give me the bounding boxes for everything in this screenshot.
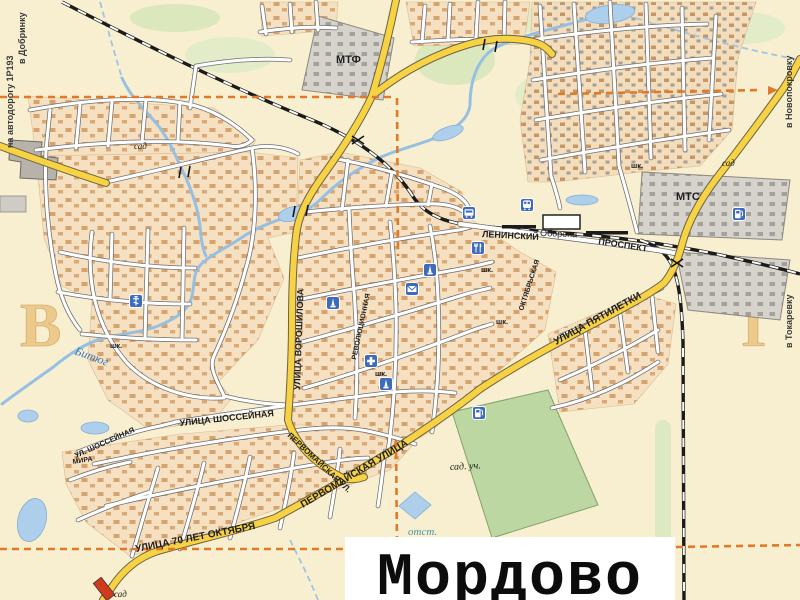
hospital-icon xyxy=(365,355,378,368)
edge-label-highway: на автодорогу 1Р193 xyxy=(5,55,15,148)
town-map-canvas: + + + В Г xyxy=(0,0,800,600)
town-map: + + + В Г xyxy=(0,0,800,600)
bus-station-icon xyxy=(463,207,476,220)
grid-letter-west: В xyxy=(20,292,61,360)
station-building xyxy=(543,215,580,229)
monument-icon xyxy=(424,264,437,277)
edge-label-novopokrovka: в Новопокровку xyxy=(784,56,794,128)
edge-label-dobrinka: в Добринку xyxy=(17,12,27,64)
monument-icon xyxy=(327,297,340,310)
title-band: Мордово xyxy=(345,537,675,600)
restaurant-icon xyxy=(472,242,485,255)
label-mtf: МТФ xyxy=(336,54,361,66)
street-label-oborona: Оборона xyxy=(540,228,577,239)
map-title: Мордово xyxy=(377,545,643,600)
train-station-icon xyxy=(521,199,534,212)
label-sad: сад xyxy=(114,589,127,599)
label-school: шк. xyxy=(375,369,387,378)
gas-station-icon xyxy=(473,407,486,420)
label-sad: сад xyxy=(722,158,735,168)
station-yard-area xyxy=(676,252,790,320)
label-sad-uch: сад. уч. xyxy=(450,460,481,473)
label-mts: МТС xyxy=(676,191,700,203)
label-school: шк. xyxy=(631,161,643,170)
gas-station-icon xyxy=(733,208,746,221)
label-school: шк. xyxy=(110,341,122,350)
label-sad: сад xyxy=(134,141,147,151)
label-school: шк. xyxy=(481,265,493,274)
monument-icon xyxy=(380,378,393,391)
post-office-icon xyxy=(406,283,419,296)
church-icon xyxy=(130,295,143,308)
label-otst: отст. xyxy=(408,526,437,538)
label-school: шк. xyxy=(496,317,508,326)
edge-label-tokarevka: в Токаревку xyxy=(784,294,794,348)
